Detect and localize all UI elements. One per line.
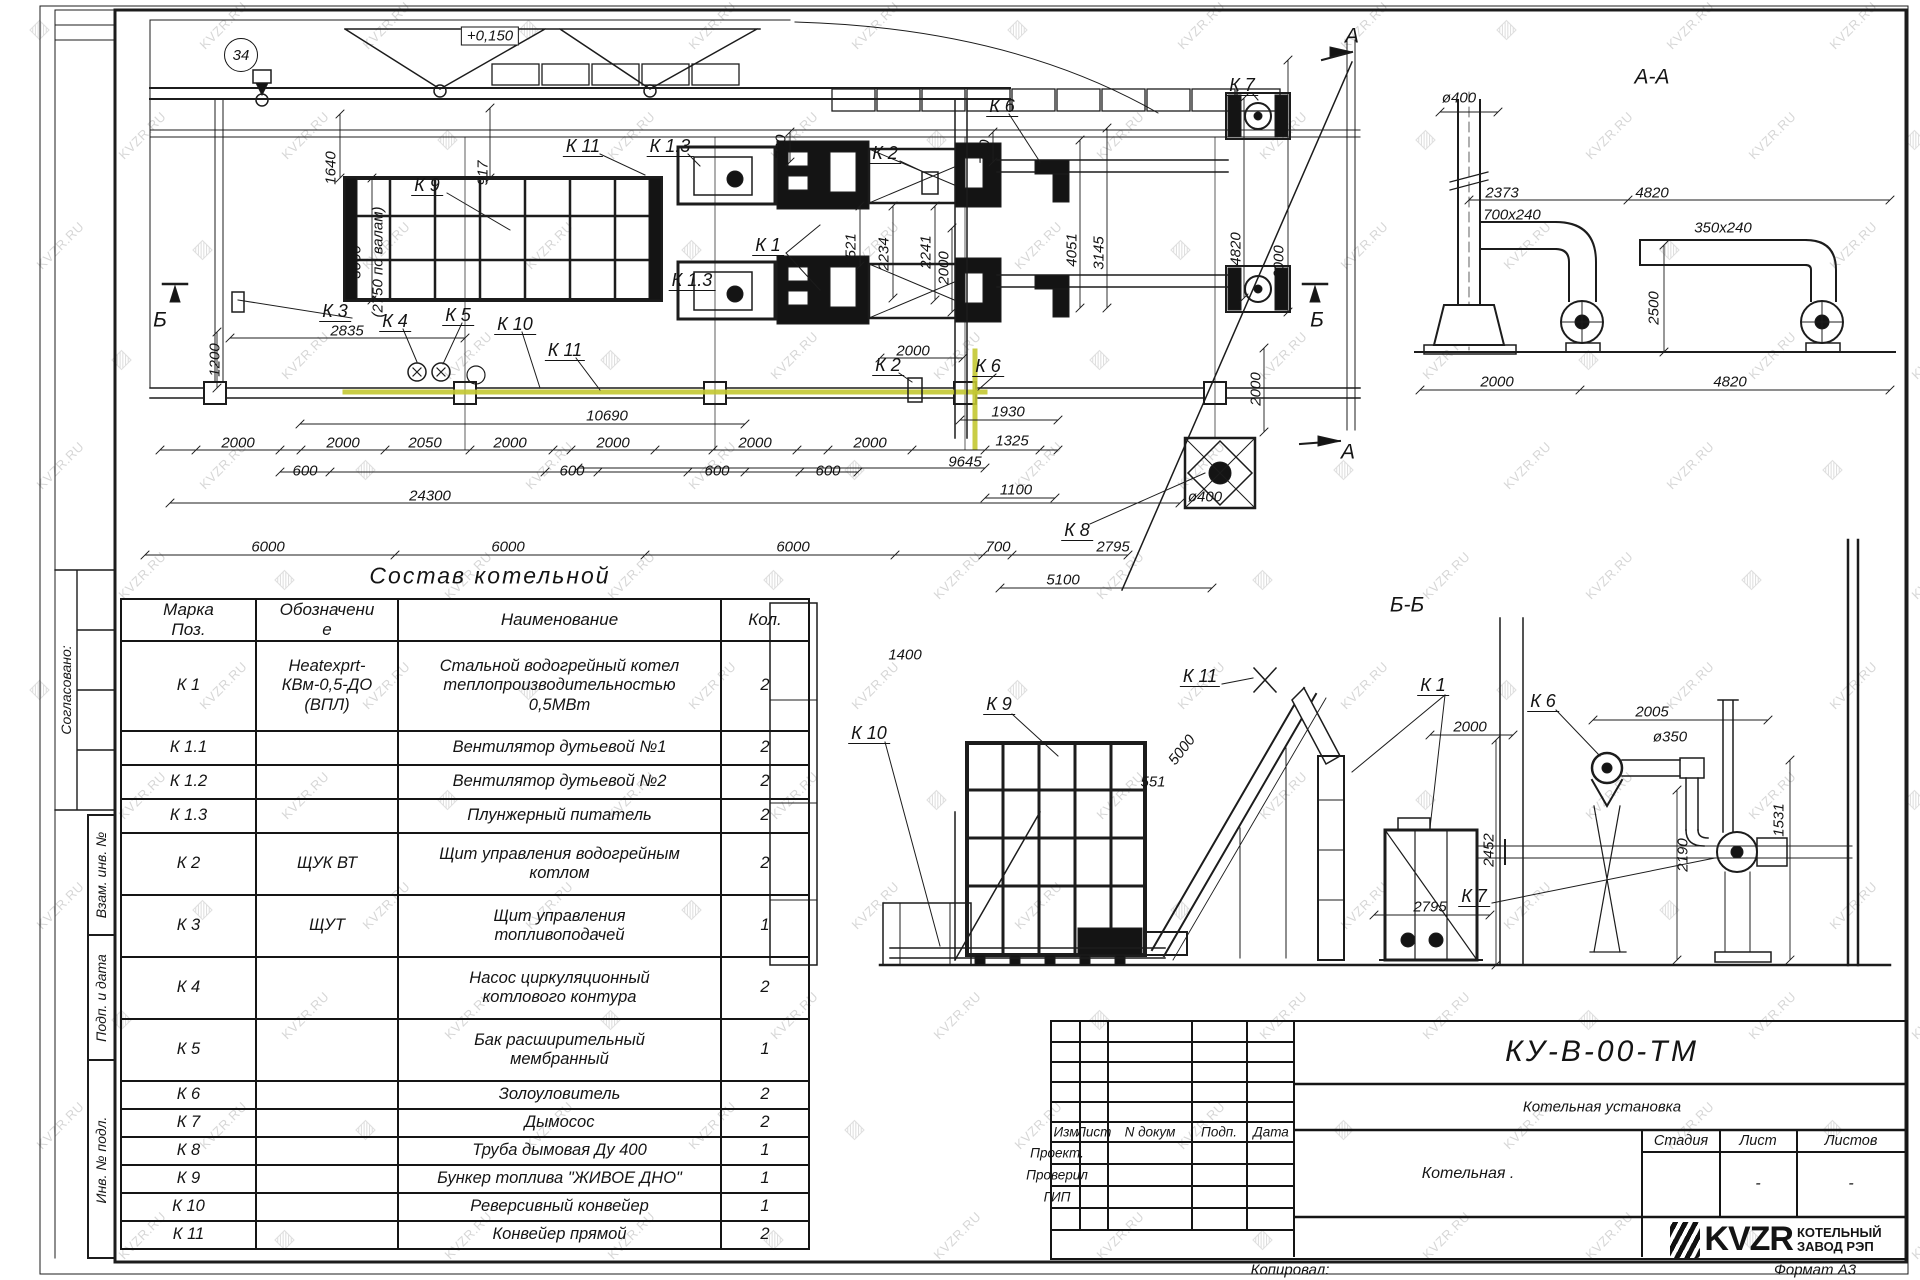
components-table: Марка Поз. Обозначени е Наименование Кол… <box>120 598 810 1250</box>
dim-label: 1100 <box>1000 483 1032 498</box>
table-row: К 5Бак расширительный мембранный1 <box>121 1019 809 1081</box>
table-cell: 1 <box>721 1193 809 1221</box>
table-cell: К 7 <box>121 1109 256 1137</box>
section-title: А <box>1345 26 1359 47</box>
dim-label: 700 <box>985 540 1010 555</box>
kvzr-logo-icon <box>1670 1222 1700 1258</box>
dim-label: 4820 <box>1229 232 1244 265</box>
dim-label: 5000 <box>1166 732 1198 768</box>
table-row: К 9Бункер топлива "ЖИВОЕ ДНО"1 <box>121 1165 809 1193</box>
table-row: К 11Конвейер прямой2 <box>121 1221 809 1249</box>
table-cell: Насос циркуляционный котлового контура <box>398 957 721 1019</box>
stage-header: Стадия <box>1654 1133 1708 1149</box>
component-label: К 8 <box>1061 521 1093 541</box>
section-title: Б-Б <box>1390 595 1424 616</box>
component-label: К 6 <box>986 97 1018 117</box>
margin-inv-orig-label: Инв. № подл. <box>93 1117 109 1204</box>
col-data: Дата <box>1253 1125 1289 1140</box>
format-label: Формат А3 <box>1774 1262 1856 1279</box>
table-cell: 2 <box>721 1221 809 1249</box>
dim-label: 2000 <box>221 436 254 451</box>
table-cell <box>256 957 398 1019</box>
dim-label: 1200 <box>208 343 223 376</box>
doc-number: КУ-В-00-ТМ <box>1505 1035 1699 1069</box>
table-cell: 1 <box>721 1165 809 1193</box>
dim-label: 2000 <box>1453 720 1486 735</box>
table-cell: К 1.3 <box>121 799 256 833</box>
table-cell: К 11 <box>121 1221 256 1249</box>
table-cell: 2 <box>721 833 809 895</box>
dim-label: 6000 <box>491 540 524 555</box>
sheets-header: Листов <box>1825 1133 1878 1149</box>
elevation-label: +0,150 <box>461 27 519 46</box>
dim-label: 6000 <box>1272 245 1287 278</box>
dim-label: 2000 <box>326 436 359 451</box>
table-row: К 6Золоуловитель2 <box>121 1081 809 1109</box>
component-label: К 3 <box>319 302 351 322</box>
dim-label: 350x240 <box>1694 221 1752 236</box>
table-cell: 2 <box>721 1081 809 1109</box>
component-label: К 11 <box>545 341 585 361</box>
table-cell <box>256 1019 398 1081</box>
dim-label: 1521 <box>844 233 859 266</box>
dim-label: 1531 <box>1772 803 1787 836</box>
dim-label: ø400 <box>1442 91 1476 106</box>
dim-label: 2000 <box>1480 375 1513 390</box>
component-label: К 2 <box>872 356 904 376</box>
col-mark: Марка Поз. <box>121 599 256 641</box>
table-cell: Стальной водогрейный котел теплопроизвод… <box>398 641 721 731</box>
dim-label: 600 <box>559 464 584 479</box>
dim-label: 4051 <box>1065 233 1080 266</box>
table-cell <box>256 1081 398 1109</box>
table-row: К 2ЩУК ВТЩит управления водогрейным котл… <box>121 833 809 895</box>
table-cell: 1 <box>721 895 809 957</box>
table-cell: К 3 <box>121 895 256 957</box>
sheets-value: - <box>1848 1175 1853 1193</box>
dim-label: 6000 <box>776 540 809 555</box>
table-cell: 2 <box>721 641 809 731</box>
table-cell: ЩУК ВТ <box>256 833 398 895</box>
col-izm: Изм <box>1053 1125 1078 1140</box>
dim-label: 2000 <box>596 436 629 451</box>
table-cell <box>256 731 398 765</box>
dim-label: 1930 <box>991 405 1024 420</box>
table-cell: К 1.1 <box>121 731 256 765</box>
dim-label: 2452 <box>1482 833 1497 866</box>
section-title: Б <box>1310 310 1324 331</box>
component-label: К 4 <box>379 312 411 332</box>
dim-label: (2750 по валам) <box>371 206 386 317</box>
dim-label: 24300 <box>409 489 451 504</box>
table-cell: Щит управления топливоподачей <box>398 895 721 957</box>
dim-label: 600 <box>704 464 729 479</box>
component-label: К 6 <box>972 357 1004 377</box>
table-cell: К 4 <box>121 957 256 1019</box>
table-cell: Золоуловитель <box>398 1081 721 1109</box>
dim-label: 551 <box>1140 775 1165 790</box>
col-designation: Обозначени е <box>256 599 398 641</box>
dim-label: 600 <box>815 464 840 479</box>
table-cell: 1 <box>721 1019 809 1081</box>
dim-label: 5100 <box>1046 573 1079 588</box>
table-row: К 7Дымосос2 <box>121 1109 809 1137</box>
dim-label: 2241 <box>919 235 934 268</box>
component-label: К 10 <box>848 724 890 744</box>
table-cell: Вентилятор дутьевой №1 <box>398 731 721 765</box>
grid-bubble: 34 <box>224 38 258 72</box>
copied-by-label: Копировал: <box>1251 1262 1330 1279</box>
component-label: К 9 <box>411 176 443 196</box>
dim-label: 4820 <box>1713 375 1746 390</box>
dim-label: 700 <box>978 139 993 164</box>
table-cell: 2 <box>721 957 809 1019</box>
table-cell: К 6 <box>121 1081 256 1109</box>
component-label: К 5 <box>442 306 474 326</box>
dim-label: 2373 <box>1485 186 1518 201</box>
dim-label: 700 <box>774 134 789 159</box>
sheet-header: Лист <box>1739 1133 1776 1149</box>
table-cell: Плунжерный питатель <box>398 799 721 833</box>
table-cell: Дымосос <box>398 1109 721 1137</box>
dim-label: 2795 <box>1096 540 1129 555</box>
dim-label: 917 <box>476 160 491 185</box>
table-cell: 2 <box>721 731 809 765</box>
dim-label: 2500 <box>1647 291 1662 324</box>
dim-label: 10690 <box>586 409 628 424</box>
dim-label: 2000 <box>738 436 771 451</box>
dim-label: 1325 <box>995 434 1028 449</box>
col-podp: Подп. <box>1201 1125 1237 1140</box>
table-cell: К 2 <box>121 833 256 895</box>
dim-label: 2795 <box>1413 900 1446 915</box>
table-cell: К 10 <box>121 1193 256 1221</box>
table-cell: 2 <box>721 765 809 799</box>
table-cell: Бункер топлива "ЖИВОЕ ДНО" <box>398 1165 721 1193</box>
col-ndokum: N докум <box>1125 1125 1176 1140</box>
role-proveril: Проверил <box>1026 1168 1088 1183</box>
component-label: К 11 <box>1180 667 1220 687</box>
dim-label: 2050 <box>408 436 441 451</box>
dim-label: 2234 <box>877 237 892 270</box>
table-cell <box>256 1165 398 1193</box>
section-title: Б <box>153 310 167 331</box>
table-cell: 1 <box>721 1137 809 1165</box>
margin-agreed-label: Согласовано: <box>58 645 74 734</box>
table-row: К 10Реверсивный конвейер1 <box>121 1193 809 1221</box>
table-row: К 1.2Вентилятор дутьевой №22 <box>121 765 809 799</box>
margin-sign-date-label: Подп. и дата <box>93 954 109 1042</box>
component-label: К 1.3 <box>647 137 694 157</box>
dim-label: 2005 <box>1635 705 1668 720</box>
section-title: А <box>1341 442 1355 463</box>
dim-label: 2000 <box>937 251 952 284</box>
kvzr-logo: KVZR КОТЕЛЬНЫЙ ЗАВОД РЭП <box>1644 1219 1908 1260</box>
component-label: К 1 <box>752 236 784 256</box>
table-cell: Реверсивный конвейер <box>398 1193 721 1221</box>
table-row: К 1.3Плунжерный питатель2 <box>121 799 809 833</box>
drawing-sheet: ▨KVZR.RUKVZR.RU▨KVZR.RUKVZR.RU▨KVZR.RUKV… <box>0 0 1920 1280</box>
dim-label: 9645 <box>948 455 981 470</box>
table-title: Состав котельной <box>369 565 610 588</box>
table-cell: К 1 <box>121 641 256 731</box>
dim-label: 600 <box>292 464 317 479</box>
table-row: К 4Насос циркуляционный котлового контур… <box>121 957 809 1019</box>
doc-title: Котельная установка <box>1523 1099 1681 1116</box>
dim-label: 1640 <box>324 151 339 184</box>
dim-label: 2190 <box>1676 838 1691 871</box>
dim-label: 2835 <box>330 324 363 339</box>
dim-label: ø350 <box>1653 730 1687 745</box>
sheet-value: - <box>1755 1175 1760 1193</box>
table-cell: К 9 <box>121 1165 256 1193</box>
table-cell: Heatexprt- КВм-0,5-ДО (ВПЛ) <box>256 641 398 731</box>
dim-label: 2000 <box>853 436 886 451</box>
table-cell: К 8 <box>121 1137 256 1165</box>
dim-label: 6000 <box>251 540 284 555</box>
table-cell <box>256 765 398 799</box>
component-label: К 7 <box>1226 76 1258 96</box>
table-cell: К 1.2 <box>121 765 256 799</box>
table-cell <box>256 1137 398 1165</box>
table-cell: Вентилятор дутьевой №2 <box>398 765 721 799</box>
section-title: А-А <box>1634 67 1669 88</box>
table-cell <box>256 1221 398 1249</box>
component-label: К 11 <box>563 137 603 157</box>
component-label: К 10 <box>494 315 536 335</box>
kvzr-logo-caption: КОТЕЛЬНЫЙ ЗАВОД РЭП <box>1797 1226 1882 1253</box>
table-cell: Щит управления водогрейным котлом <box>398 833 721 895</box>
table-cell: 2 <box>721 799 809 833</box>
kvzr-logo-text: KVZR <box>1704 1220 1793 1259</box>
col-list: Лист <box>1077 1125 1112 1140</box>
component-label: К 7 <box>1458 887 1490 907</box>
table-cell <box>256 799 398 833</box>
component-label: К 1.3 <box>669 271 716 291</box>
col-name: Наименование <box>398 599 721 641</box>
table-cell: 2 <box>721 1109 809 1137</box>
role-gip: ГИП <box>1044 1190 1071 1205</box>
component-label: К 6 <box>1527 692 1559 712</box>
table-cell <box>256 1109 398 1137</box>
table-cell <box>256 1193 398 1221</box>
table-cell: ЩУТ <box>256 895 398 957</box>
dim-label: 2000 <box>493 436 526 451</box>
dim-label: 700x240 <box>1483 208 1541 223</box>
margin-replace-inv-label: Взам. инв. № <box>93 832 109 919</box>
component-label: К 2 <box>869 144 901 164</box>
table-row: К 8Труба дымовая Ду 4001 <box>121 1137 809 1165</box>
component-label: К 1 <box>1417 676 1449 696</box>
col-qty: Кол. <box>721 599 809 641</box>
dim-label: 4820 <box>1635 186 1668 201</box>
dim-label: 3145 <box>1092 236 1107 269</box>
table-row: К 1.1Вентилятор дутьевой №12 <box>121 731 809 765</box>
dim-label: 1400 <box>888 648 921 663</box>
object-name: Котельная . <box>1422 1165 1515 1183</box>
table-cell: Труба дымовая Ду 400 <box>398 1137 721 1165</box>
role-proekt: Проект. <box>1030 1146 1084 1161</box>
dim-label: 2000 <box>1249 372 1264 405</box>
table-cell: Бак расширительный мембранный <box>398 1019 721 1081</box>
component-label: К 9 <box>983 695 1015 715</box>
table-cell: К 5 <box>121 1019 256 1081</box>
table-cell: Конвейер прямой <box>398 1221 721 1249</box>
title-block: КУ-В-00-ТМ Котельная установка Котельная… <box>1050 1020 1908 1260</box>
dim-label: 3000 <box>349 245 364 278</box>
table-header-row: Марка Поз. Обозначени е Наименование Кол… <box>121 599 809 641</box>
table-row: К 1Heatexprt- КВм-0,5-ДО (ВПЛ)Стальной в… <box>121 641 809 731</box>
table-row: К 3ЩУТЩит управления топливоподачей1 <box>121 895 809 957</box>
dim-label: ø400 <box>1188 490 1222 505</box>
